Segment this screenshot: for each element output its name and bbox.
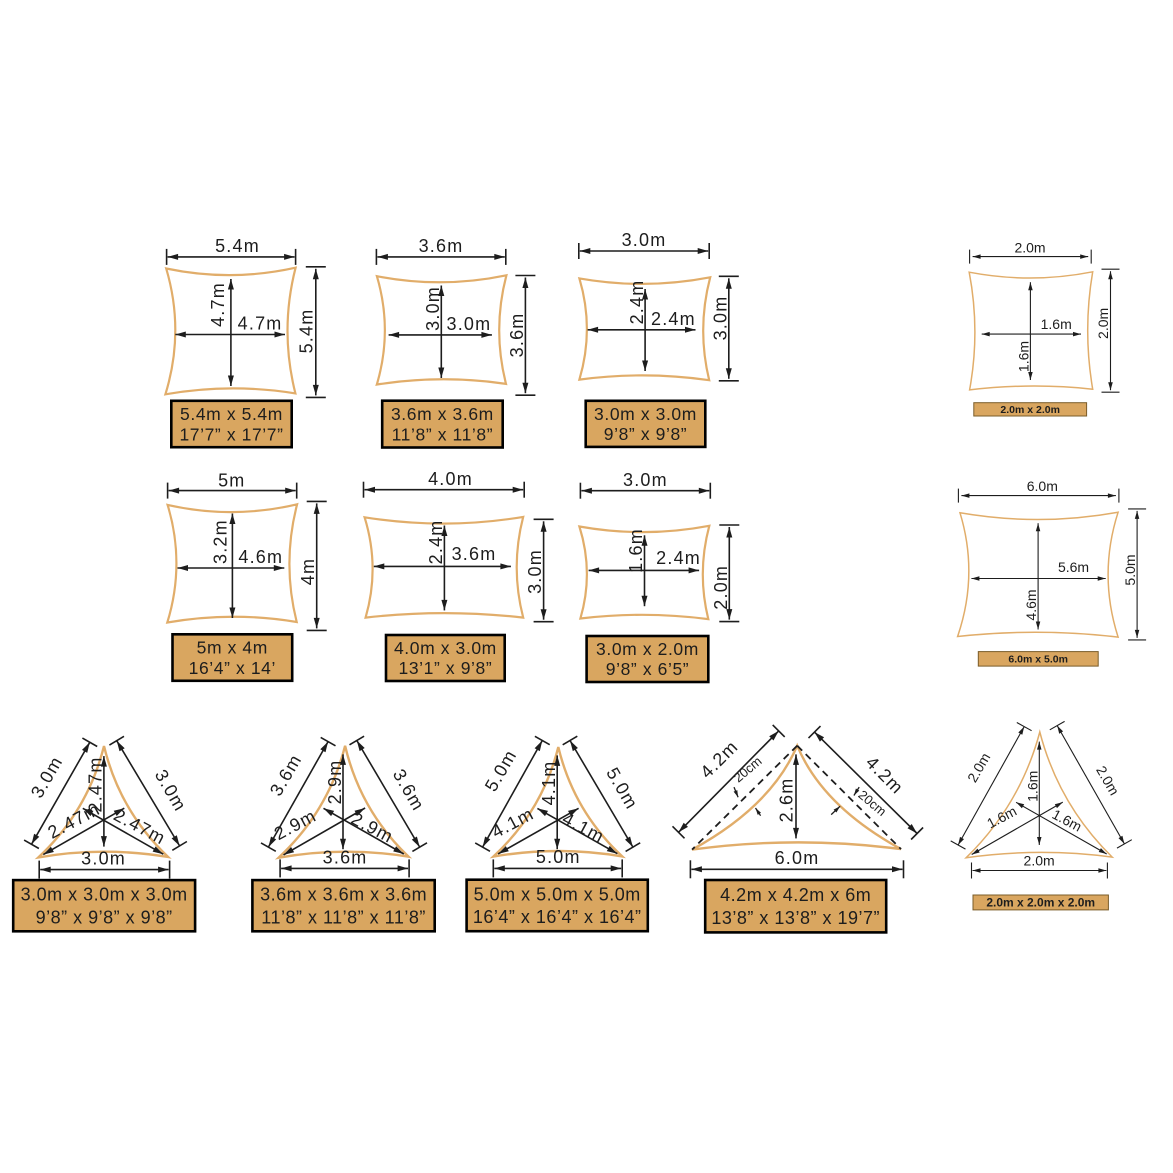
svg-text:16’4” x 16’4” x 16’4”: 16’4” x 16’4” x 16’4” xyxy=(473,907,642,927)
svg-text:2.0m x 2.0m x 2.0m: 2.0m x 2.0m x 2.0m xyxy=(986,896,1095,910)
svg-text:5.4m: 5.4m xyxy=(215,236,260,256)
svg-text:1.6m: 1.6m xyxy=(1025,771,1041,802)
svg-text:4.6m: 4.6m xyxy=(1023,589,1039,620)
svg-text:3.2m: 3.2m xyxy=(211,519,231,564)
svg-text:3.0m x 3.0m: 3.0m x 3.0m xyxy=(594,404,697,424)
svg-text:3.6m x 3.6m: 3.6m x 3.6m xyxy=(391,404,494,424)
svg-text:3.6m x 3.6m x 3.6m: 3.6m x 3.6m x 3.6m xyxy=(260,885,427,905)
svg-text:3.0m: 3.0m xyxy=(446,314,491,334)
svg-text:2.0m: 2.0m xyxy=(711,565,731,610)
svg-text:16’4” x 14’: 16’4” x 14’ xyxy=(189,658,276,678)
svg-text:4.2m x 4.2m x 6m: 4.2m x 4.2m x 6m xyxy=(720,885,871,905)
svg-text:17’7” x 17’7”: 17’7” x 17’7” xyxy=(179,424,283,444)
svg-text:5.6m: 5.6m xyxy=(1058,559,1089,575)
svg-text:3.0m x 2.0m: 3.0m x 2.0m xyxy=(596,639,699,659)
svg-text:6.0m: 6.0m xyxy=(775,848,820,868)
svg-text:3.6m: 3.6m xyxy=(323,848,368,868)
svg-text:2.6m: 2.6m xyxy=(777,778,797,823)
svg-text:3.0m: 3.0m xyxy=(623,470,668,490)
svg-text:4.0m: 4.0m xyxy=(428,469,473,489)
svg-text:3.0m x 3.0m x 3.0m: 3.0m x 3.0m x 3.0m xyxy=(21,885,188,905)
svg-text:3.0m: 3.0m xyxy=(81,849,126,869)
svg-text:3.0m: 3.0m xyxy=(622,230,667,250)
svg-text:1.6m: 1.6m xyxy=(626,528,646,573)
svg-text:11’8” x 11’8” x 11’8”: 11’8” x 11’8” x 11’8” xyxy=(261,907,426,927)
svg-text:5.0m: 5.0m xyxy=(536,847,581,867)
svg-text:9’8” x 9’8” x 9’8”: 9’8” x 9’8” x 9’8” xyxy=(36,907,173,927)
svg-text:5m x 4m: 5m x 4m xyxy=(197,637,268,657)
svg-text:6.0m: 6.0m xyxy=(1027,478,1058,494)
svg-text:13’1” x 9’8”: 13’1” x 9’8” xyxy=(399,658,493,678)
svg-text:5.0m x 5.0m x 5.0m: 5.0m x 5.0m x 5.0m xyxy=(474,884,641,904)
svg-text:9’8” x 6’5”: 9’8” x 6’5” xyxy=(606,659,689,679)
svg-text:1.6m: 1.6m xyxy=(1016,341,1032,372)
svg-text:1.6m: 1.6m xyxy=(1041,316,1072,332)
svg-text:2.0m x 2.0m: 2.0m x 2.0m xyxy=(1000,404,1060,416)
svg-text:13’8” x 13’8” x 19’7”: 13’8” x 13’8” x 19’7” xyxy=(711,908,880,928)
svg-text:4.7m: 4.7m xyxy=(208,282,228,327)
svg-text:2.4m: 2.4m xyxy=(651,309,696,329)
svg-text:3.0m: 3.0m xyxy=(711,296,731,341)
svg-text:5m: 5m xyxy=(218,471,245,491)
svg-text:2.4m: 2.4m xyxy=(656,548,701,568)
svg-text:2.4m: 2.4m xyxy=(426,519,446,564)
svg-text:3.6m: 3.6m xyxy=(452,544,497,564)
svg-text:11’8” x 11’8”: 11’8” x 11’8” xyxy=(392,425,494,445)
svg-text:3.0m: 3.0m xyxy=(525,549,545,594)
svg-text:4.6m: 4.6m xyxy=(238,547,283,567)
svg-text:2.0m: 2.0m xyxy=(1095,308,1111,339)
svg-text:4.7m: 4.7m xyxy=(238,314,283,334)
svg-text:4.0m x 3.0m: 4.0m x 3.0m xyxy=(394,638,497,658)
svg-text:2.9m: 2.9m xyxy=(325,760,345,805)
svg-text:3.0m: 3.0m xyxy=(423,286,443,331)
svg-text:9’8” x 9’8”: 9’8” x 9’8” xyxy=(604,424,687,444)
svg-text:5.0m: 5.0m xyxy=(1122,554,1138,585)
svg-text:2.0m: 2.0m xyxy=(1014,240,1045,256)
svg-text:4.1m: 4.1m xyxy=(539,761,559,806)
svg-text:5.4m x 5.4m: 5.4m x 5.4m xyxy=(180,404,283,424)
svg-text:2.4m: 2.4m xyxy=(627,280,647,325)
svg-text:4m: 4m xyxy=(298,558,318,585)
svg-text:2.0m: 2.0m xyxy=(1024,853,1055,869)
svg-text:5.4m: 5.4m xyxy=(297,309,317,354)
svg-text:3.6m: 3.6m xyxy=(507,312,527,357)
svg-text:3.6m: 3.6m xyxy=(419,236,464,256)
svg-text:6.0m x 5.0m: 6.0m x 5.0m xyxy=(1008,654,1068,666)
